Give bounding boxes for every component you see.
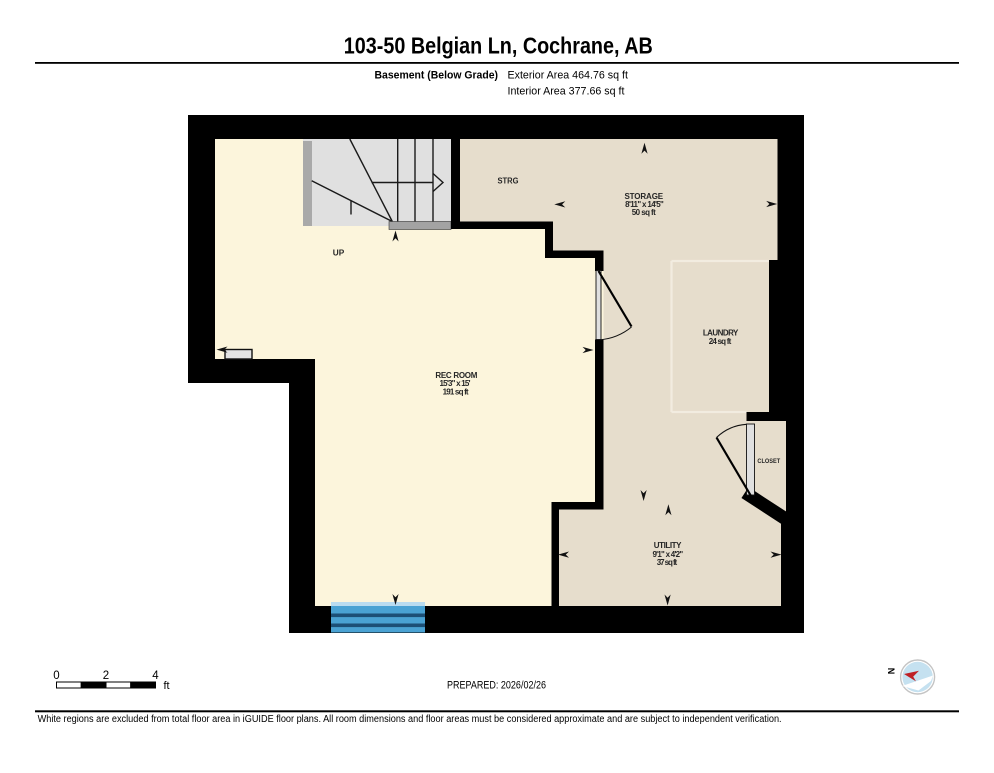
svg-text:103-50 Belgian Ln, Cochrane, A: 103-50 Belgian Ln, Cochrane, AB: [344, 32, 653, 58]
svg-text:N: N: [887, 668, 897, 675]
svg-text:50 sq ft: 50 sq ft: [632, 208, 656, 217]
svg-text:CLOSET: CLOSET: [757, 458, 780, 465]
svg-text:Interior Area 377.66 sq ft: Interior Area 377.66 sq ft: [508, 86, 625, 98]
svg-text:UP: UP: [333, 249, 345, 258]
svg-text:24 sq ft: 24 sq ft: [709, 337, 732, 346]
svg-text:2: 2: [103, 670, 109, 682]
svg-text:37 sq ft: 37 sq ft: [657, 558, 678, 567]
svg-text:Exterior Area 464.76 sq ft: Exterior Area 464.76 sq ft: [508, 70, 629, 82]
svg-text:STRG: STRG: [498, 177, 519, 186]
svg-text:0: 0: [53, 670, 59, 682]
svg-text:4: 4: [152, 670, 159, 682]
svg-text:White regions are excluded fro: White regions are excluded from total fl…: [38, 714, 782, 725]
svg-text:PREPARED: 2026/02/26: PREPARED: 2026/02/26: [447, 679, 546, 691]
svg-text:UTILITY: UTILITY: [654, 541, 682, 550]
svg-text:191 sq ft: 191 sq ft: [443, 387, 469, 396]
svg-text:ft: ft: [164, 680, 170, 692]
svg-text:Basement (Below Grade): Basement (Below Grade): [375, 70, 499, 82]
